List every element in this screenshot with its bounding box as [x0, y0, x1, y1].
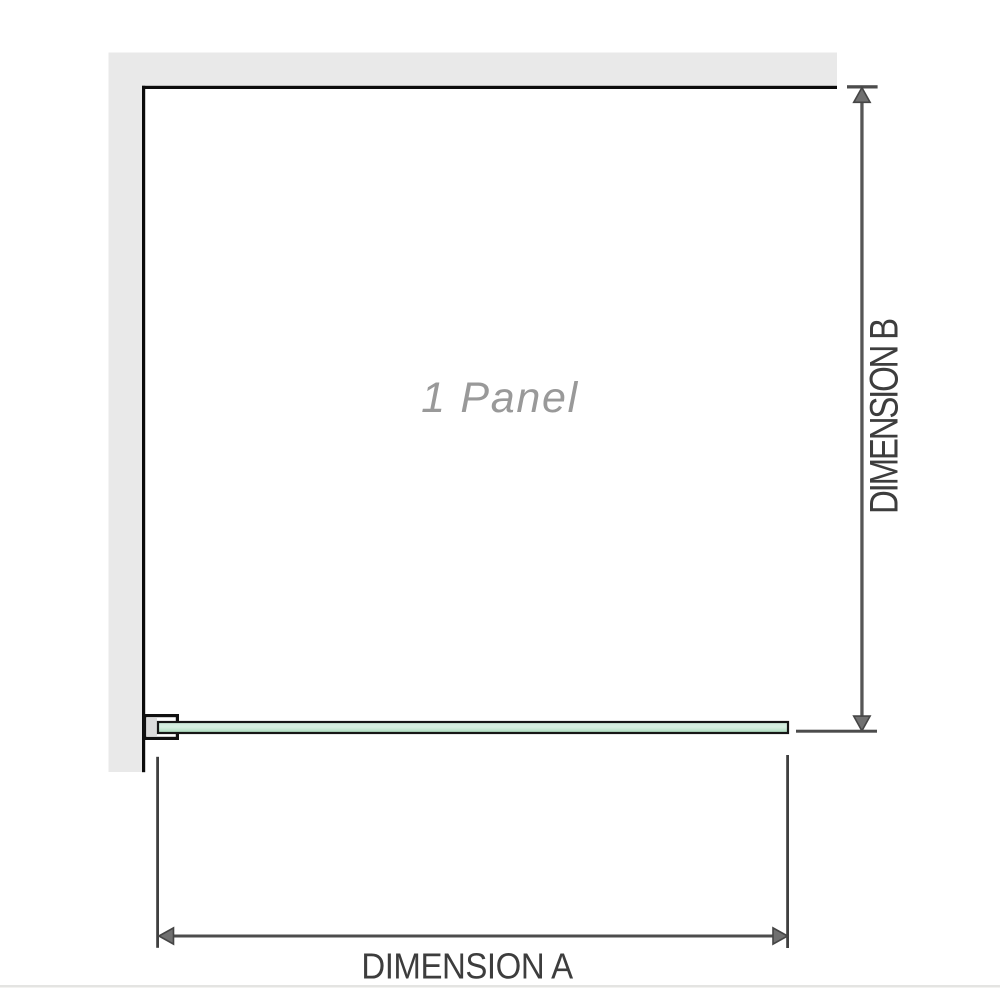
svg-text:DIMENSION B: DIMENSION B — [861, 319, 906, 514]
svg-text:DIMENSION A: DIMENSION A — [361, 947, 574, 987]
svg-text:1 Panel: 1 Panel — [421, 374, 579, 422]
